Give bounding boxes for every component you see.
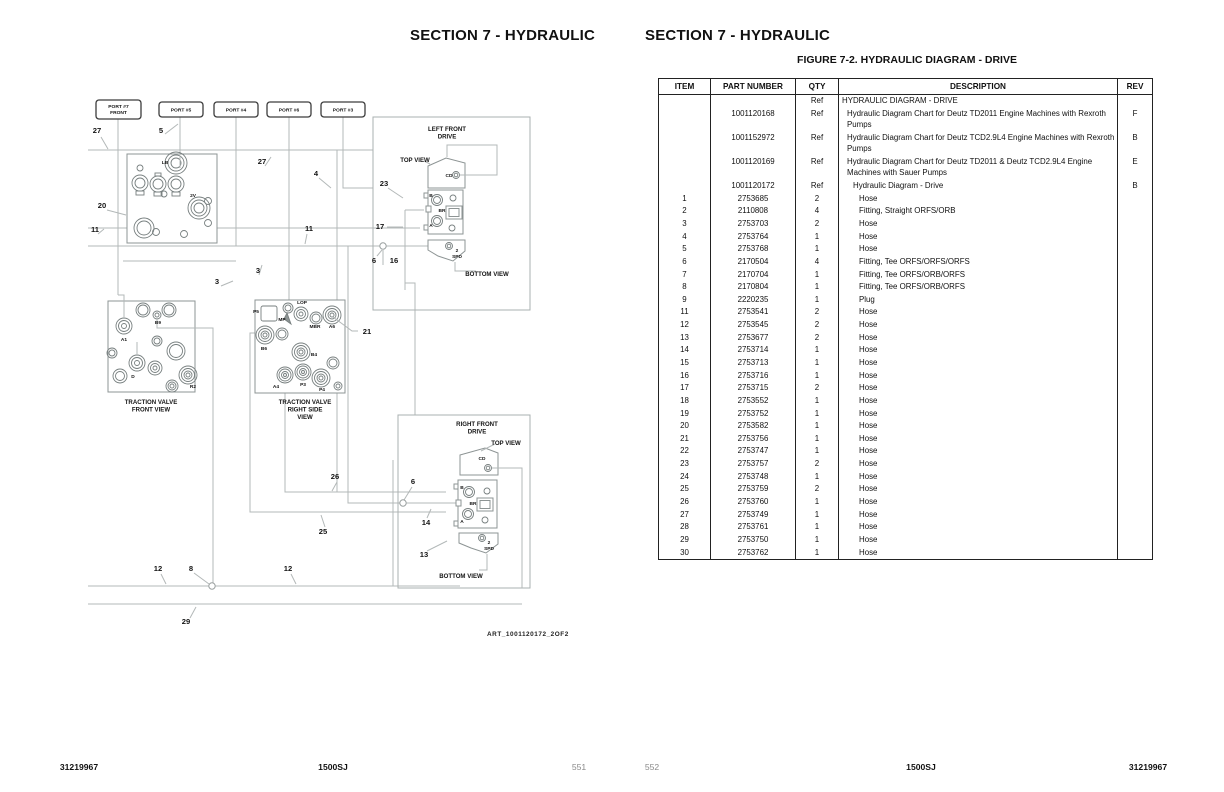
cell-item: 28 xyxy=(659,521,711,534)
component-label-cd: CD xyxy=(446,173,453,179)
cell-description: Hose xyxy=(839,306,1118,319)
cell-item: 21 xyxy=(659,432,711,445)
component-label-d: D xyxy=(131,374,135,380)
component-label-spd: SPD xyxy=(484,546,494,552)
cell-description: Hose xyxy=(839,331,1118,344)
cell-qty: Ref xyxy=(796,155,839,179)
component-label-mbr: MBR xyxy=(310,324,321,330)
cell-item xyxy=(659,155,711,179)
cell-qty: 1 xyxy=(796,420,839,433)
component-label-a: A xyxy=(429,223,433,229)
cell-rev: B xyxy=(1118,179,1153,192)
cell-rev xyxy=(1118,382,1153,395)
col-header-rev: REV xyxy=(1118,79,1153,95)
figure-title: FIGURE 7-2. HYDRAULIC DIAGRAM - DRIVE xyxy=(797,54,1017,66)
cell-description: Hose xyxy=(839,356,1118,369)
cell-part-number: 2753713 xyxy=(711,356,796,369)
cell-rev xyxy=(1118,470,1153,483)
cell-rev xyxy=(1118,483,1153,496)
cell-part-number: 2753764 xyxy=(711,230,796,243)
cell-qty: Ref xyxy=(796,131,839,155)
cell-description: Hose xyxy=(839,394,1118,407)
cell-rev xyxy=(1118,94,1153,107)
cell-description: Hose xyxy=(839,495,1118,508)
cell-rev xyxy=(1118,331,1153,344)
cell-part-number: 2753756 xyxy=(711,432,796,445)
callout-23: 23 xyxy=(380,179,388,188)
cell-item: 1 xyxy=(659,192,711,205)
cell-part-number: 2753545 xyxy=(711,318,796,331)
callout-12: 12 xyxy=(154,564,162,573)
view-label: TOP VIEW xyxy=(491,440,521,447)
table-row: 2227537471Hose xyxy=(659,445,1153,458)
cell-description: Hose xyxy=(839,382,1118,395)
cell-qty: 1 xyxy=(796,533,839,546)
page-552: SECTION 7 - HYDRAULIC FIGURE 7-2. HYDRAU… xyxy=(612,0,1224,792)
cell-description: Hose xyxy=(839,445,1118,458)
cell-item xyxy=(659,179,711,192)
cell-description: Plug xyxy=(839,293,1118,306)
table-row: 427537641Hose xyxy=(659,230,1153,243)
cell-part-number: 2110808 xyxy=(711,205,796,218)
component-label-mp: MP xyxy=(278,317,286,323)
cell-part-number: 1001120168 xyxy=(711,107,796,131)
view-label: BOTTOM VIEW xyxy=(439,573,483,580)
callout-12: 12 xyxy=(284,564,292,573)
table-row: 127536852Hose xyxy=(659,192,1153,205)
cell-part-number: 2753760 xyxy=(711,495,796,508)
cell-qty: 1 xyxy=(796,521,839,534)
cell-rev xyxy=(1118,508,1153,521)
cell-part-number: 2753761 xyxy=(711,521,796,534)
port-label: PORT #7 xyxy=(108,104,129,110)
table-row: 2327537572Hose xyxy=(659,458,1153,471)
cell-qty: 1 xyxy=(796,230,839,243)
cell-qty: 1 xyxy=(796,394,839,407)
cell-item: 25 xyxy=(659,483,711,496)
table-row: 2827537611Hose xyxy=(659,521,1153,534)
cell-qty: 2 xyxy=(796,382,839,395)
cell-description: Hydraulic Diagram - Drive xyxy=(839,179,1118,192)
cell-description: Hose xyxy=(839,546,1118,559)
parts-table: ITEM PART NUMBER QTY DESCRIPTION REV Ref… xyxy=(658,78,1153,560)
view-label: RIGHT SIDE xyxy=(288,407,323,414)
cell-qty: 2 xyxy=(796,217,839,230)
view-label: FRONT VIEW xyxy=(132,407,171,414)
component-label-cd: CD xyxy=(479,456,486,462)
cell-part-number: 2170504 xyxy=(711,255,796,268)
table-row: 2127537561Hose xyxy=(659,432,1153,445)
cell-item: 9 xyxy=(659,293,711,306)
table-row: 2027535821Hose xyxy=(659,420,1153,433)
component-label-b4: B4 xyxy=(311,352,317,358)
cell-description: Hydraulic Diagram Chart for Deutz TD2011… xyxy=(839,107,1118,131)
table-row: 2927537501Hose xyxy=(659,533,1153,546)
cell-description: Hose xyxy=(839,217,1118,230)
page-number-551: 551 xyxy=(572,762,586,772)
parts-table-header: ITEM PART NUMBER QTY DESCRIPTION REV xyxy=(659,79,1153,95)
cell-part-number: 2753768 xyxy=(711,243,796,256)
cell-rev xyxy=(1118,217,1153,230)
callout-4: 4 xyxy=(314,169,319,178)
cell-description: Hose xyxy=(839,192,1118,205)
table-row: 1827535521Hose xyxy=(659,394,1153,407)
cell-rev xyxy=(1118,521,1153,534)
col-header-item: ITEM xyxy=(659,79,711,95)
cell-part-number: 2753703 xyxy=(711,217,796,230)
table-row: 1727537152Hose xyxy=(659,382,1153,395)
cell-rev xyxy=(1118,344,1153,357)
cell-item: 11 xyxy=(659,306,711,319)
port-label: PORT #5 xyxy=(171,108,192,114)
cell-description: Hose xyxy=(839,508,1118,521)
callout-27: 27 xyxy=(258,157,266,166)
footer-model-right: 1500SJ xyxy=(906,762,936,772)
table-row: 2627537601Hose xyxy=(659,495,1153,508)
component-label-spd: SPD xyxy=(452,254,462,260)
view-label: RIGHT FRONT xyxy=(456,421,498,428)
cell-part-number: 2753748 xyxy=(711,470,796,483)
cell-part-number: 2220235 xyxy=(711,293,796,306)
component-label-a6: A6 xyxy=(329,324,335,330)
cell-part-number: 2753677 xyxy=(711,331,796,344)
callout-11: 11 xyxy=(91,225,100,234)
table-row: 1627537161Hose xyxy=(659,369,1153,382)
component-label-p5: P5 xyxy=(253,309,259,315)
table-row: 327537032Hose xyxy=(659,217,1153,230)
cell-description: Hose xyxy=(839,243,1118,256)
port-label: FRONT xyxy=(110,110,127,116)
cell-qty: 2 xyxy=(796,318,839,331)
cell-part-number: 2753749 xyxy=(711,508,796,521)
cell-part-number: 2170704 xyxy=(711,268,796,281)
table-row: 721707041Fitting, Tee ORFS/ORB/ORFS xyxy=(659,268,1153,281)
cell-qty: Ref xyxy=(796,107,839,131)
cell-item: 16 xyxy=(659,369,711,382)
cell-part-number: 2753762 xyxy=(711,546,796,559)
cell-qty: 2 xyxy=(796,331,839,344)
component-label-lb: LB xyxy=(162,160,169,166)
table-row: 1001152972RefHydraulic Diagram Chart for… xyxy=(659,131,1153,155)
cell-rev xyxy=(1118,293,1153,306)
cell-description: Hose xyxy=(839,483,1118,496)
cell-rev xyxy=(1118,243,1153,256)
footer-model-left: 1500SJ xyxy=(318,762,348,772)
cell-rev xyxy=(1118,533,1153,546)
cell-rev xyxy=(1118,306,1153,319)
cell-description: Hose xyxy=(839,318,1118,331)
view-label: TOP VIEW xyxy=(400,157,430,164)
callout-16: 16 xyxy=(390,256,398,265)
table-row: 1927537521Hose xyxy=(659,407,1153,420)
component-label-2: 2 xyxy=(456,248,459,254)
cell-description: Hose xyxy=(839,420,1118,433)
component-label-a4: A4 xyxy=(273,384,279,390)
cell-description: Hose xyxy=(839,521,1118,534)
col-header-qty: QTY xyxy=(796,79,839,95)
cell-item: 26 xyxy=(659,495,711,508)
component-label-br: BR xyxy=(439,208,446,214)
callout-21: 21 xyxy=(363,327,372,336)
cell-qty: 1 xyxy=(796,344,839,357)
view-label: BOTTOM VIEW xyxy=(465,271,509,278)
callout-8: 8 xyxy=(189,564,193,573)
cell-rev: B xyxy=(1118,131,1153,155)
callout-6: 6 xyxy=(372,256,376,265)
cell-rev xyxy=(1118,255,1153,268)
table-row: 1327536772Hose xyxy=(659,331,1153,344)
cell-rev xyxy=(1118,281,1153,294)
table-row: 527537681Hose xyxy=(659,243,1153,256)
port-label: PORT #3 xyxy=(333,108,354,114)
hydraulic-diagram: PORT #7FRONTPORT #5PORT #4PORT #6PORT #3… xyxy=(0,0,612,700)
view-label: DRIVE xyxy=(438,134,457,141)
cell-rev xyxy=(1118,458,1153,471)
parts-table-wrap: ITEM PART NUMBER QTY DESCRIPTION REV Ref… xyxy=(658,78,1153,560)
table-row: 621705044Fitting, Tee ORFS/ORFS/ORFS xyxy=(659,255,1153,268)
table-row: 922202351Plug xyxy=(659,293,1153,306)
component-label-r2: R2 xyxy=(190,384,196,390)
cell-item: 19 xyxy=(659,407,711,420)
cell-part-number: 2753685 xyxy=(711,192,796,205)
cell-part-number: 2170804 xyxy=(711,281,796,294)
table-row: RefHYDRAULIC DIAGRAM - DRIVE xyxy=(659,94,1153,107)
callout-14: 14 xyxy=(422,518,431,527)
cell-rev xyxy=(1118,230,1153,243)
cell-item: 29 xyxy=(659,533,711,546)
cell-item: 13 xyxy=(659,331,711,344)
cell-item: 18 xyxy=(659,394,711,407)
cell-part-number: 2753759 xyxy=(711,483,796,496)
cell-rev xyxy=(1118,356,1153,369)
table-row: 1001120172RefHydraulic Diagram - DriveB xyxy=(659,179,1153,192)
callout-29: 29 xyxy=(182,617,190,626)
cell-qty: 2 xyxy=(796,483,839,496)
cell-description: Hose xyxy=(839,470,1118,483)
cell-qty: 1 xyxy=(796,495,839,508)
table-row: 1527537131Hose xyxy=(659,356,1153,369)
view-label: DRIVE xyxy=(468,429,487,436)
component-label-b: B xyxy=(429,193,433,199)
table-row: 3027537621Hose xyxy=(659,546,1153,559)
callout-3: 3 xyxy=(256,266,260,275)
cell-item: 12 xyxy=(659,318,711,331)
table-row: 2527537592Hose xyxy=(659,483,1153,496)
cell-part-number: 2753757 xyxy=(711,458,796,471)
cell-part-number: 1001120169 xyxy=(711,155,796,179)
cell-item: 27 xyxy=(659,508,711,521)
cell-part-number: 2753747 xyxy=(711,445,796,458)
view-label: TRACTION VALVE xyxy=(279,399,332,406)
cell-description: Fitting, Tee ORFS/ORB/ORFS xyxy=(839,281,1118,294)
cell-part-number: 2753582 xyxy=(711,420,796,433)
port-label: PORT #4 xyxy=(226,108,247,114)
cell-item: 20 xyxy=(659,420,711,433)
table-row: 1001120169RefHydraulic Diagram Chart for… xyxy=(659,155,1153,179)
cell-qty: 1 xyxy=(796,243,839,256)
page-number-552: 552 xyxy=(645,762,659,772)
view-label: VIEW xyxy=(297,414,313,421)
col-header-part-number: PART NUMBER xyxy=(711,79,796,95)
component-label-b: B xyxy=(460,485,464,491)
cell-item: 4 xyxy=(659,230,711,243)
cell-rev xyxy=(1118,369,1153,382)
cell-rev xyxy=(1118,394,1153,407)
cell-part-number: 2753715 xyxy=(711,382,796,395)
cell-qty: 1 xyxy=(796,546,839,559)
cell-item: 30 xyxy=(659,546,711,559)
cell-item: 2 xyxy=(659,205,711,218)
callout-27: 27 xyxy=(93,126,101,135)
cell-description: Hose xyxy=(839,344,1118,357)
port-label: PORT #6 xyxy=(279,108,300,114)
cell-qty: 4 xyxy=(796,255,839,268)
cell-qty: 1 xyxy=(796,445,839,458)
cell-item: 22 xyxy=(659,445,711,458)
cell-item: 14 xyxy=(659,344,711,357)
component-label-a: A xyxy=(460,519,464,525)
callout-6: 6 xyxy=(411,477,415,486)
table-row: 2727537491Hose xyxy=(659,508,1153,521)
cell-rev xyxy=(1118,495,1153,508)
cell-qty: 1 xyxy=(796,369,839,382)
cell-qty: 1 xyxy=(796,432,839,445)
cell-item: 6 xyxy=(659,255,711,268)
cell-part-number: 2753714 xyxy=(711,344,796,357)
right-front-drive-assembly xyxy=(454,448,498,553)
table-row: 221108084Fitting, Straight ORFS/ORB xyxy=(659,205,1153,218)
cell-qty: 1 xyxy=(796,268,839,281)
art-reference: ART_1001120172_2OF2 xyxy=(487,631,569,638)
cell-item xyxy=(659,94,711,107)
cell-description: Hydraulic Diagram Chart for Deutz TCD2.9… xyxy=(839,131,1118,155)
cell-rev xyxy=(1118,420,1153,433)
component-label-p3: P3 xyxy=(300,382,306,388)
cell-rev xyxy=(1118,546,1153,559)
cell-description: Fitting, Tee ORFS/ORFS/ORFS xyxy=(839,255,1118,268)
col-header-description: DESCRIPTION xyxy=(839,79,1118,95)
cell-qty: 1 xyxy=(796,293,839,306)
cell-part-number xyxy=(711,94,796,107)
component-label-lop: LOP xyxy=(297,300,308,306)
cell-item: 7 xyxy=(659,268,711,281)
cell-rev: F xyxy=(1118,107,1153,131)
cell-qty: Ref xyxy=(796,94,839,107)
callout-5: 5 xyxy=(159,126,164,135)
cell-qty: 1 xyxy=(796,508,839,521)
table-row: 1227535452Hose xyxy=(659,318,1153,331)
callout-26: 26 xyxy=(331,472,339,481)
cell-part-number: 1001152972 xyxy=(711,131,796,155)
cell-description: Hose xyxy=(839,369,1118,382)
cell-rev xyxy=(1118,407,1153,420)
cell-item: 15 xyxy=(659,356,711,369)
cell-part-number: 2753752 xyxy=(711,407,796,420)
cell-rev xyxy=(1118,318,1153,331)
callout-11: 11 xyxy=(305,224,314,233)
cell-item: 3 xyxy=(659,217,711,230)
cell-rev xyxy=(1118,192,1153,205)
callout-17: 17 xyxy=(376,222,384,231)
cell-qty: 4 xyxy=(796,205,839,218)
cell-description: HYDRAULIC DIAGRAM - DRIVE xyxy=(839,94,1118,107)
cell-item: 24 xyxy=(659,470,711,483)
component-label-2: 2 xyxy=(488,540,491,546)
cell-item: 17 xyxy=(659,382,711,395)
cell-item xyxy=(659,107,711,131)
view-label: LEFT FRONT xyxy=(428,126,466,133)
cell-rev xyxy=(1118,205,1153,218)
cell-qty: 2 xyxy=(796,306,839,319)
cell-rev xyxy=(1118,268,1153,281)
cell-description: Hose xyxy=(839,432,1118,445)
component-label-a1: A1 xyxy=(121,337,127,343)
callout-13: 13 xyxy=(420,550,428,559)
cell-qty: 1 xyxy=(796,407,839,420)
component-label-2v: 2V xyxy=(190,193,197,199)
cell-item: 5 xyxy=(659,243,711,256)
table-row: 821708041Fitting, Tee ORFS/ORB/ORFS xyxy=(659,281,1153,294)
cell-qty: 2 xyxy=(796,192,839,205)
cell-part-number: 1001120172 xyxy=(711,179,796,192)
cell-description: Hydraulic Diagram Chart for Deutz TD2011… xyxy=(839,155,1118,179)
cell-qty: Ref xyxy=(796,179,839,192)
cell-qty: 1 xyxy=(796,281,839,294)
cell-description: Fitting, Tee ORFS/ORB/ORFS xyxy=(839,268,1118,281)
view-label: TRACTION VALVE xyxy=(125,399,178,406)
component-label-br: BR xyxy=(470,501,477,507)
manual-spread: SECTION 7 - HYDRAULIC xyxy=(0,0,1224,792)
cell-item xyxy=(659,131,711,155)
cell-description: Hose xyxy=(839,407,1118,420)
callout-3: 3 xyxy=(215,277,219,286)
cell-rev xyxy=(1118,432,1153,445)
cell-description: Hose xyxy=(839,230,1118,243)
table-row: 1001120168RefHydraulic Diagram Chart for… xyxy=(659,107,1153,131)
cell-item: 23 xyxy=(659,458,711,471)
component-label-b9: B9 xyxy=(155,320,161,326)
cell-qty: 1 xyxy=(796,470,839,483)
cell-item: 8 xyxy=(659,281,711,294)
cell-rev xyxy=(1118,445,1153,458)
cell-part-number: 2753716 xyxy=(711,369,796,382)
footer-doc-number-right: 31219967 xyxy=(1129,762,1167,772)
cell-rev: E xyxy=(1118,155,1153,179)
cell-part-number: 2753750 xyxy=(711,533,796,546)
table-row: 1427537141Hose xyxy=(659,344,1153,357)
table-row: 1127535412Hose xyxy=(659,306,1153,319)
component-label-p4: P4 xyxy=(319,387,325,393)
cell-qty: 1 xyxy=(796,356,839,369)
cell-part-number: 2753552 xyxy=(711,394,796,407)
page-551: SECTION 7 - HYDRAULIC xyxy=(0,0,612,792)
cell-description: Hose xyxy=(839,458,1118,471)
cell-part-number: 2753541 xyxy=(711,306,796,319)
footer-doc-number-left: 31219967 xyxy=(60,762,98,772)
cell-description: Hose xyxy=(839,533,1118,546)
valve-block-top xyxy=(127,154,217,243)
callout-20: 20 xyxy=(98,201,106,210)
component-label-b6: B6 xyxy=(261,346,267,352)
cell-qty: 2 xyxy=(796,458,839,471)
section-header-right: SECTION 7 - HYDRAULIC xyxy=(645,27,830,44)
callout-25: 25 xyxy=(319,527,328,536)
table-row: 2427537481Hose xyxy=(659,470,1153,483)
cell-description: Fitting, Straight ORFS/ORB xyxy=(839,205,1118,218)
